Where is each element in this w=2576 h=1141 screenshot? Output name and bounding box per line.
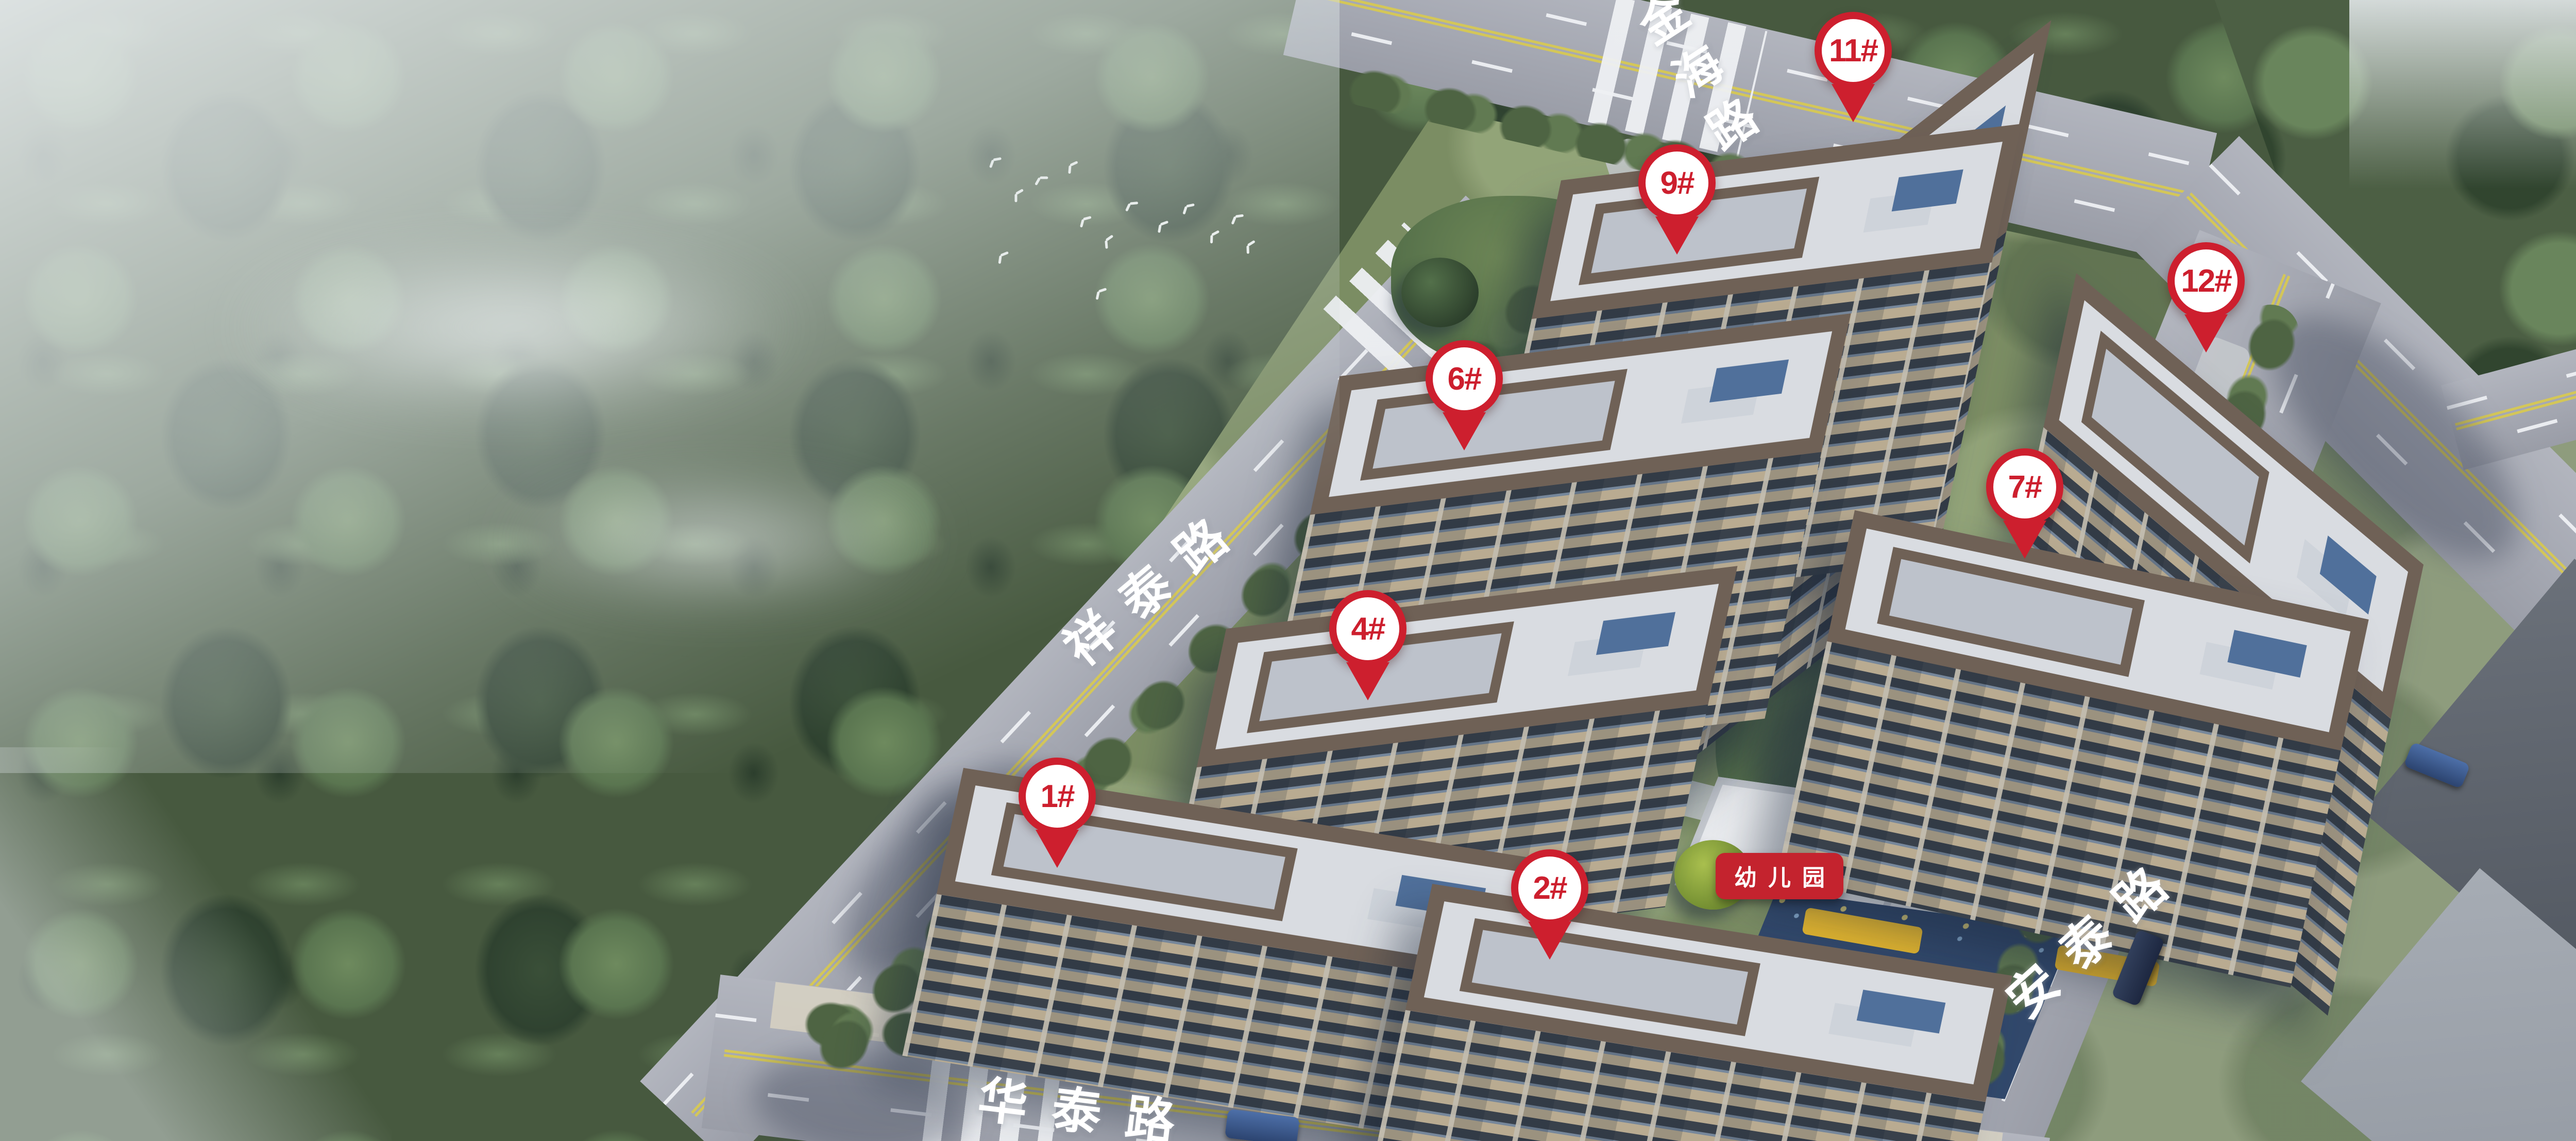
building-number-label: 7# — [2008, 469, 2042, 506]
bird-icon — [1154, 217, 1170, 234]
building-marker-6[interactable]: 6# — [1426, 340, 1503, 450]
pin-tail-icon — [2003, 521, 2046, 559]
building-number-label: 1# — [1041, 778, 1074, 815]
kindergarten-label: 幼儿园 — [1734, 865, 1836, 891]
cloud-band — [422, 454, 1015, 629]
pin-tail-icon — [1036, 830, 1079, 868]
bird-icon — [1100, 232, 1114, 250]
building-marker-1[interactable]: 1# — [1019, 758, 1096, 868]
pin-circle: 2# — [1511, 849, 1588, 927]
building-number-label: 12# — [2181, 263, 2231, 299]
building-marker-2[interactable]: 2# — [1511, 849, 1588, 960]
bird-icon — [1010, 186, 1025, 204]
pin-circle: 11# — [1815, 12, 1892, 89]
pin-circle: 6# — [1426, 340, 1503, 417]
tree — [1401, 258, 1479, 327]
cloud-band — [129, 216, 902, 438]
bird-icon — [994, 248, 1010, 265]
bird-icon — [1032, 172, 1049, 187]
bird-icon — [1228, 210, 1245, 226]
pin-tail-icon — [1346, 662, 1389, 700]
pin-circle: 1# — [1019, 758, 1096, 835]
pin-tail-icon — [2184, 314, 2228, 353]
building-marker-7[interactable]: 7# — [1986, 448, 2063, 559]
bird-icon — [1122, 197, 1140, 213]
bird-icon — [1076, 212, 1093, 229]
building-marker-11[interactable]: 11# — [1815, 12, 1892, 122]
bird-icon — [1206, 227, 1221, 245]
building-marker-4[interactable]: 4# — [1329, 590, 1406, 700]
bird-icon — [1242, 238, 1257, 255]
building-number-label: 4# — [1351, 611, 1385, 647]
pin-tail-icon — [1832, 84, 1875, 122]
pin-tail-icon — [1528, 921, 1571, 960]
mist-overlay-southwest — [0, 747, 392, 1141]
pin-circle: 9# — [1638, 144, 1716, 222]
kindergarten-badge[interactable]: 幼儿园 — [1716, 853, 1843, 899]
pin-tail-icon — [1443, 412, 1486, 450]
building-number-label: 11# — [1829, 32, 1877, 69]
pin-circle: 4# — [1329, 590, 1406, 667]
bird-icon — [1092, 284, 1108, 301]
bird-icon — [1064, 158, 1079, 175]
building-number-label: 6# — [1448, 361, 1481, 397]
bird-icon — [986, 153, 1003, 170]
building-number-label: 9# — [1660, 165, 1694, 202]
building-marker-9[interactable]: 9# — [1638, 144, 1716, 255]
pin-tail-icon — [1655, 216, 1699, 255]
pin-circle: 7# — [1986, 448, 2063, 526]
pin-circle: 12# — [2167, 242, 2245, 320]
building-number-label: 2# — [1533, 870, 1567, 907]
aerial-site-rendering: 金海路 祥泰路 安泰路 华泰路 1# 2# 4# 6# 7# 9# 11# 12… — [0, 0, 2576, 1141]
bird-icon — [1179, 199, 1196, 216]
building-marker-12[interactable]: 12# — [2167, 242, 2245, 353]
